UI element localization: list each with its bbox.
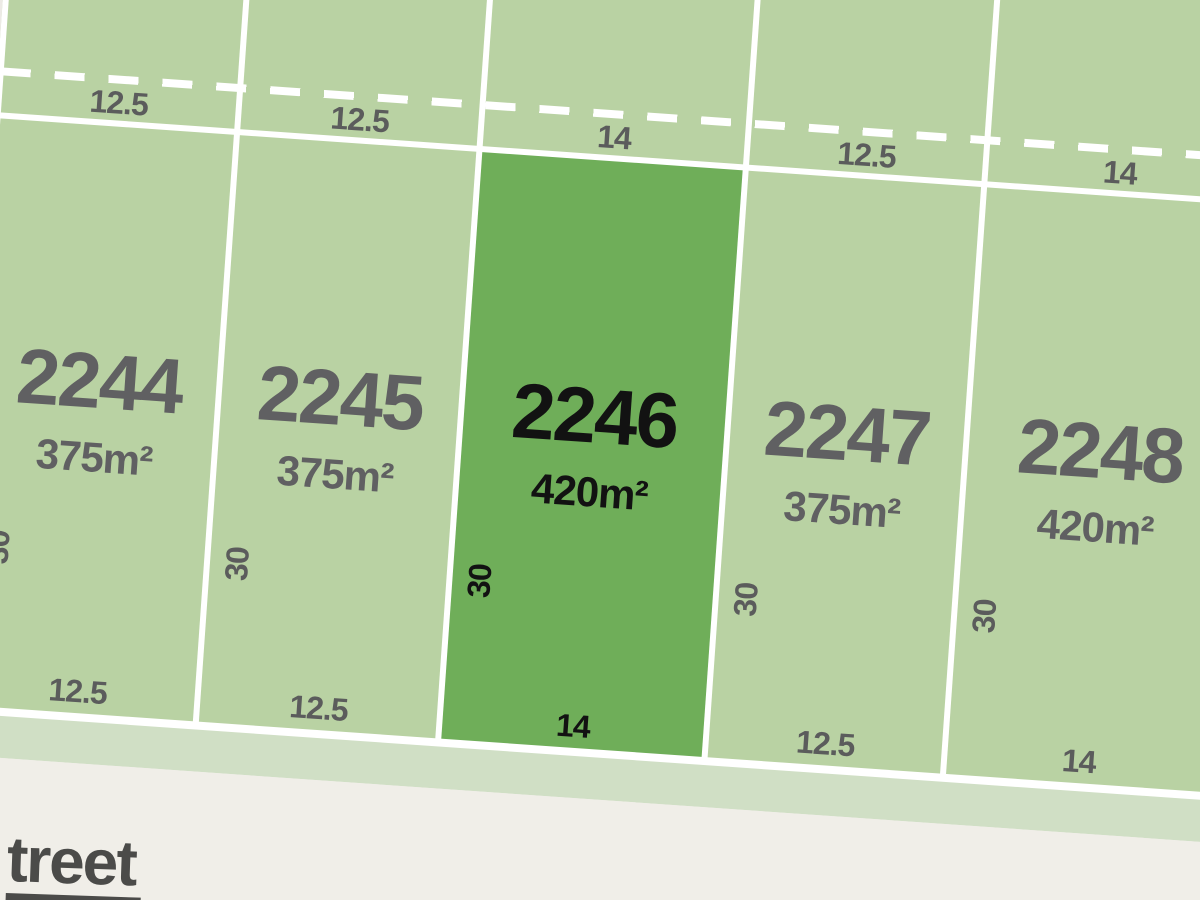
lot-number: 2247 <box>725 386 969 480</box>
lot-number: 2245 <box>216 350 464 445</box>
lot-area: 375m² <box>721 481 962 540</box>
depth-dimension: 30 <box>965 565 1004 667</box>
front-dimension: 12.5 <box>0 667 199 716</box>
street-name-label: treet <box>6 831 143 900</box>
lot-area: 375m² <box>212 445 457 504</box>
lot-2245[interactable]: 12.5 2245 375m² 30 12.5 <box>196 132 480 743</box>
lot-map: 12.5 2244 375m² 30 12.5 12.5 2245 375m² … <box>0 0 1200 900</box>
lot-2247[interactable]: 12.5 2247 375m² 30 12.5 <box>704 168 984 778</box>
lot-2248[interactable]: 14 2248 420m² 30 14 <box>943 184 1200 796</box>
lot-number: 2248 <box>964 403 1200 500</box>
depth-dimension: 30 <box>0 496 17 598</box>
lot-area: 420m² <box>455 462 724 523</box>
depth-dimension: 30 <box>218 513 257 615</box>
depth-dimension: 30 <box>460 530 499 632</box>
lot-area: 375m² <box>0 428 215 487</box>
depth-dimension: 30 <box>726 549 765 651</box>
lot-area: 420m² <box>959 497 1200 558</box>
lot-number: 2244 <box>0 334 222 429</box>
lot-number: 2246 <box>459 367 731 463</box>
subdivision-plan: 12.5 2244 375m² 30 12.5 12.5 2245 375m² … <box>0 0 1200 900</box>
lot-2246[interactable]: 14 2246 420m² 30 14 <box>438 149 746 761</box>
